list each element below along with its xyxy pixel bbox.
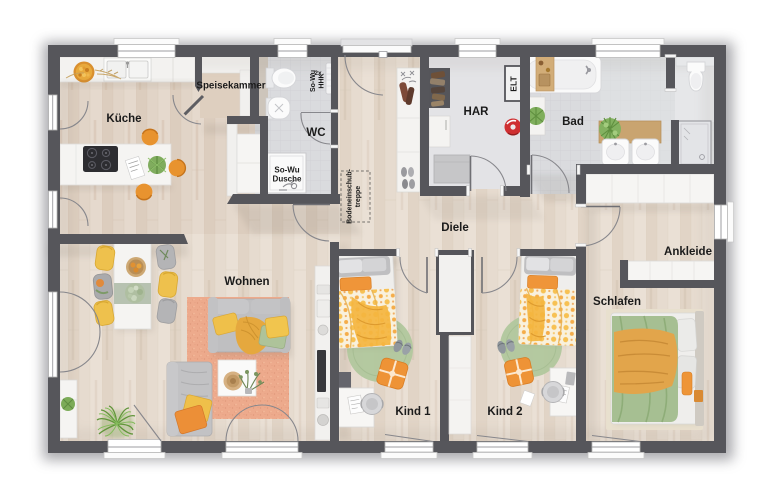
svg-text:So-Wu: So-Wu (274, 166, 299, 175)
svg-text:Bodeneinschub-: Bodeneinschub- (347, 168, 354, 224)
svg-text:Bad: Bad (562, 116, 584, 128)
svg-text:2x: 2x (314, 70, 322, 77)
svg-text:WC: WC (306, 127, 325, 139)
svg-text:Diele: Diele (441, 222, 469, 234)
svg-text:Kind 2: Kind 2 (487, 406, 522, 418)
svg-text:HAR: HAR (464, 106, 490, 118)
svg-text:Schlafen: Schlafen (593, 296, 641, 308)
svg-text:ELT: ELT (508, 75, 518, 91)
svg-text:Dusche: Dusche (273, 175, 302, 184)
svg-text:Speisekammer: Speisekammer (196, 81, 265, 92)
svg-text:treppe: treppe (355, 186, 362, 208)
svg-text:Kind 1: Kind 1 (395, 406, 431, 418)
svg-text:Wohnen: Wohnen (224, 276, 269, 288)
svg-text:Küche: Küche (106, 113, 141, 125)
svg-text:Ankleide: Ankleide (664, 246, 712, 258)
